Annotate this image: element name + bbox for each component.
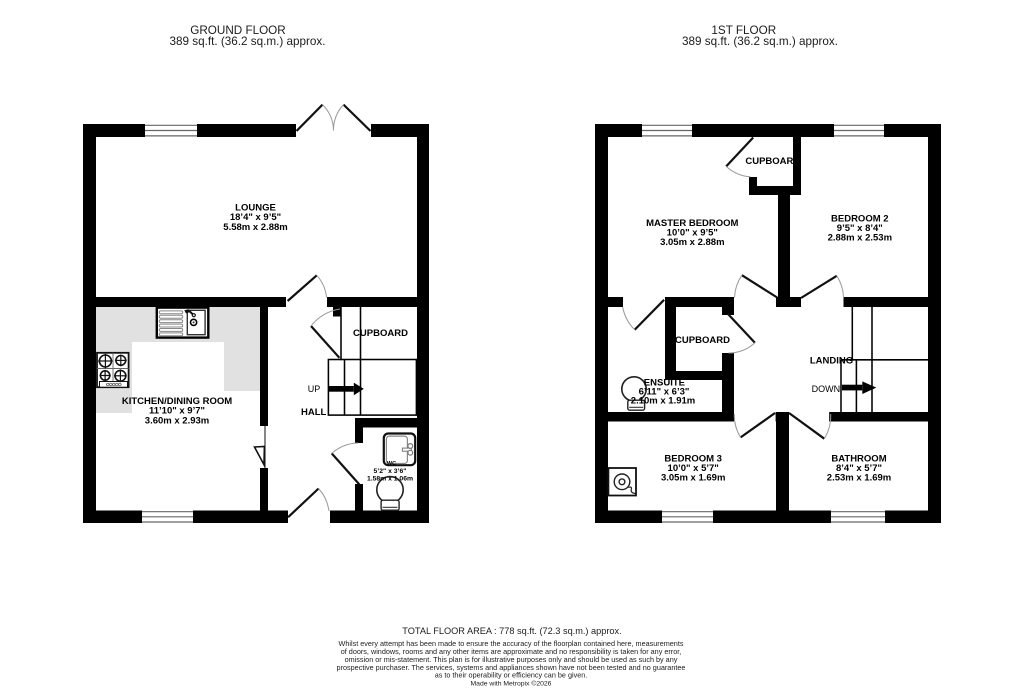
svg-text:2.10m x 1.91m: 2.10m x 1.91m — [631, 395, 695, 406]
svg-text:3.05m x 1.69m: 3.05m x 1.69m — [661, 472, 725, 483]
svg-text:WC: WC — [387, 461, 396, 467]
svg-text:2.88m x 2.53m: 2.88m x 2.53m — [828, 233, 892, 244]
svg-text:CUPBOARD: CUPBOARD — [745, 156, 800, 167]
svg-text:Made with Metropix ©2026: Made with Metropix ©2026 — [471, 679, 552, 687]
svg-text:HALL: HALL — [301, 407, 327, 418]
svg-text:3.05m x 2.88m: 3.05m x 2.88m — [660, 237, 724, 248]
svg-text:DOWN: DOWN — [812, 384, 841, 394]
svg-text:3.60m x 2.93m: 3.60m x 2.93m — [145, 416, 209, 427]
svg-text:UP: UP — [308, 384, 321, 394]
svg-text:5.58m x 2.88m: 5.58m x 2.88m — [223, 222, 287, 233]
svg-text:TOTAL FLOOR AREA : 778 sq.ft.: TOTAL FLOOR AREA : 778 sq.ft. (72.3 sq.m… — [402, 626, 621, 636]
svg-text:CUPBOARD: CUPBOARD — [353, 328, 408, 339]
svg-text:5’2" x 3’6": 5’2" x 3’6" — [374, 468, 407, 475]
svg-text:LANDING: LANDING — [810, 355, 853, 366]
svg-text:as to their operability or eff: as to their operability or efficiency ca… — [435, 671, 588, 680]
svg-text:CUPBOARD: CUPBOARD — [675, 335, 730, 346]
svg-text:389 sq.ft. (36.2 sq.m.) approx: 389 sq.ft. (36.2 sq.m.) approx. — [170, 35, 326, 48]
svg-text:2.53m x 1.69m: 2.53m x 1.69m — [827, 472, 891, 483]
svg-text:389 sq.ft. (36.2 sq.m.) approx: 389 sq.ft. (36.2 sq.m.) approx. — [682, 35, 838, 48]
svg-text:1.58m x 1.06m: 1.58m x 1.06m — [367, 476, 413, 483]
